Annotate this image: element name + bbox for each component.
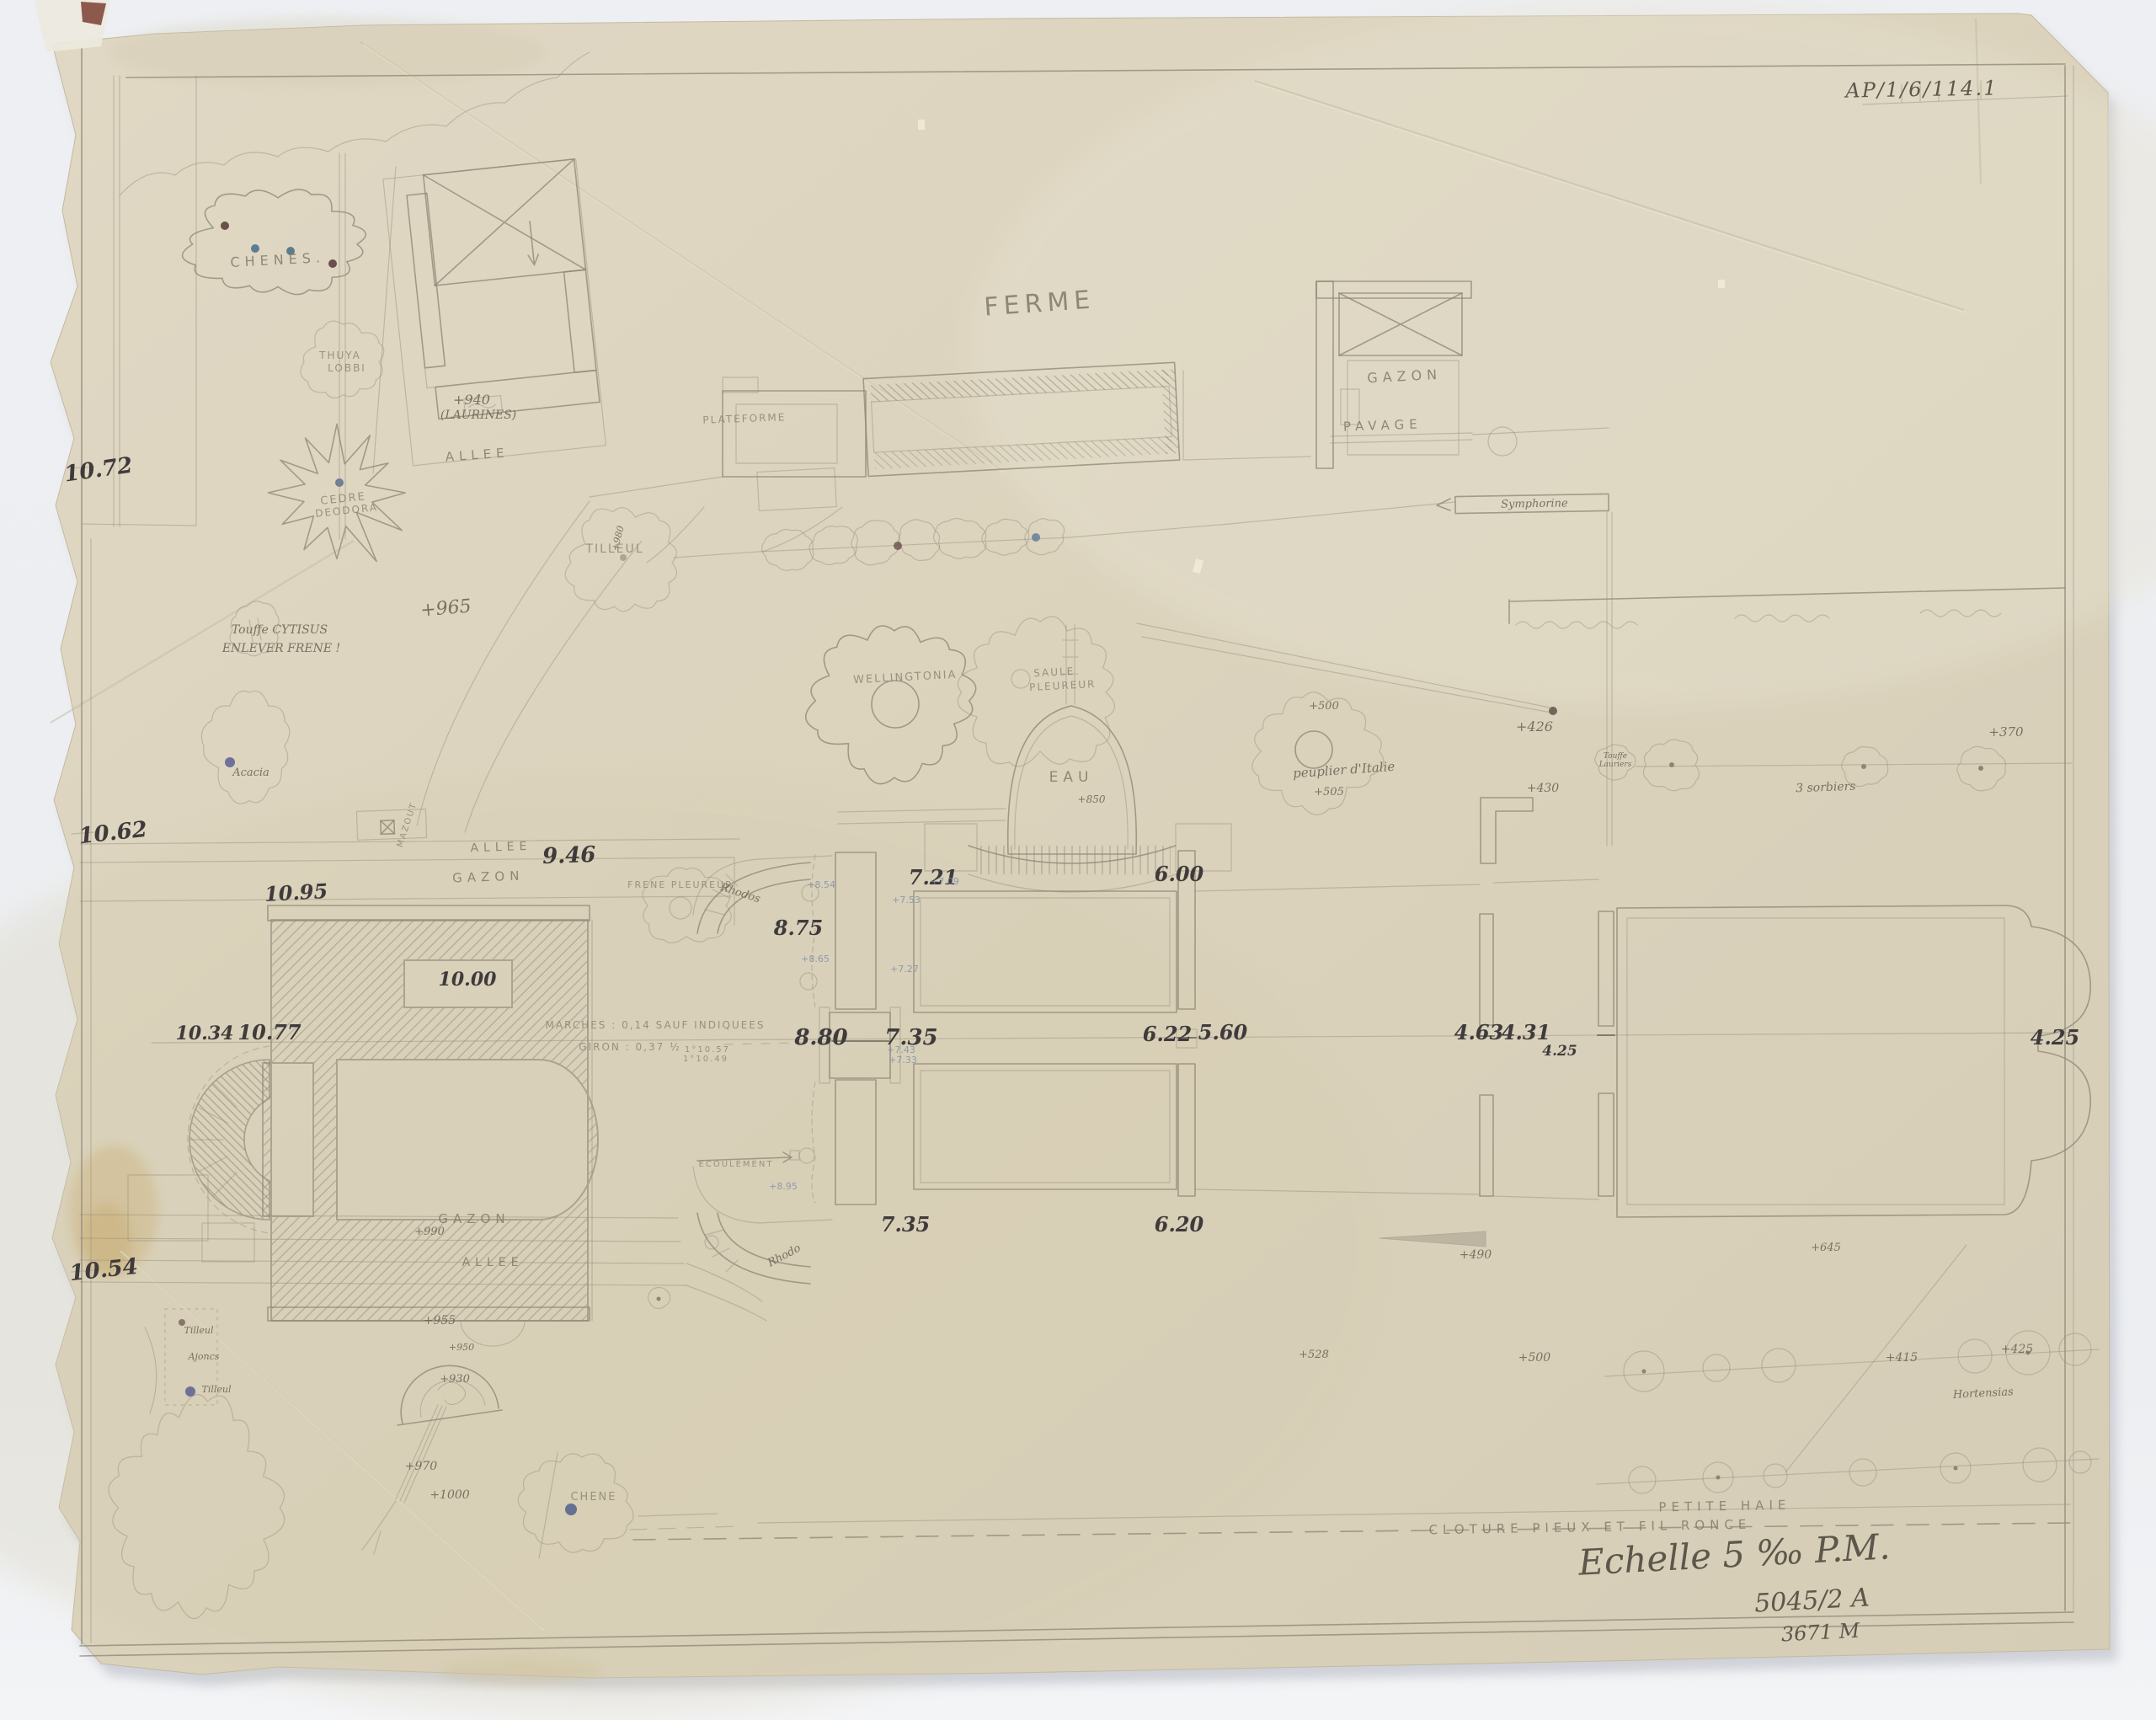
svg-text:7.35: 7.35: [881, 1212, 930, 1237]
svg-text:Ajoncs: Ajoncs: [188, 1351, 220, 1362]
svg-text:+940: +940: [453, 392, 490, 408]
svg-text:4.31: 4.31: [1502, 1020, 1550, 1044]
label-thuya: THUYA: [318, 350, 361, 361]
plan-canvas: AP/1/6/114.1 FERME PLATEFORME GAZON PAVA…: [0, 0, 2156, 1720]
svg-text:+645: +645: [1811, 1242, 1841, 1254]
svg-text:+370: +370: [1988, 724, 2024, 740]
label-touffe-lauriers: Touffe: [1604, 752, 1627, 761]
label-cytisus: Touffe CYTISUS: [232, 623, 328, 637]
svg-text:6.00: 6.00: [1155, 862, 1204, 886]
svg-text:+500: +500: [1309, 700, 1339, 713]
label-laurines: (LAURINES): [440, 409, 516, 422]
svg-text:+950: +950: [449, 1342, 474, 1353]
svg-text:+970: +970: [405, 1460, 438, 1473]
svg-text:8.75: 8.75: [773, 916, 823, 940]
svg-text:4.25: 4.25: [1542, 1043, 1577, 1060]
svg-text:+500: +500: [1518, 1351, 1551, 1365]
label-eau: EAU: [1049, 769, 1094, 786]
svg-text:4.63: 4.63: [1454, 1020, 1503, 1044]
svg-text:SAULE: SAULE: [1033, 665, 1075, 680]
label-gazon-top: GAZON: [452, 868, 525, 886]
svg-text:1°10.49: 1°10.49: [683, 1055, 728, 1064]
label-symphorine: Symphorine: [1501, 497, 1568, 510]
svg-text:LOBBI: LOBBI: [328, 362, 366, 374]
label-allee-top: ALLEE: [470, 840, 531, 856]
svg-text:+850: +850: [1078, 793, 1106, 805]
svg-text:1°10.57: 1°10.57: [685, 1045, 730, 1055]
svg-text:+8.95: +8.95: [769, 1181, 798, 1192]
svg-text:10.34: 10.34: [176, 1023, 234, 1044]
label-gazon-bottom: GAZON: [438, 1211, 510, 1226]
svg-text:+930: +930: [440, 1373, 470, 1386]
label-acacia: Acacia: [232, 767, 269, 779]
level-965: +965: [419, 596, 472, 621]
svg-text:+8.65: +8.65: [801, 953, 830, 964]
level-880: 8.80: [793, 1025, 847, 1050]
svg-text:Tilleul: Tilleul: [184, 1325, 213, 1336]
svg-text:+7.27: +7.27: [890, 964, 919, 975]
svg-text:+415: +415: [1886, 1351, 1919, 1365]
svg-text:Tilleul: Tilleul: [201, 1384, 231, 1395]
svg-text:+990: +990: [414, 1226, 445, 1238]
svg-text:6.22: 6.22: [1143, 1022, 1192, 1046]
level-946: 9.46: [542, 842, 596, 869]
svg-text:10.77: 10.77: [237, 1020, 301, 1044]
svg-text:+7.09: +7.09: [931, 876, 959, 887]
svg-text:4.25: 4.25: [2031, 1025, 2079, 1050]
svg-text:Lauriers: Lauriers: [1598, 761, 1632, 769]
svg-text:+1000: +1000: [430, 1488, 469, 1502]
label-chene: CHENE: [570, 1491, 616, 1504]
label-pavage: PAVAGE: [1343, 416, 1422, 434]
svg-text:+426: +426: [1516, 718, 1553, 734]
svg-text:+7.53: +7.53: [892, 895, 921, 905]
svg-text:+430: +430: [1527, 782, 1560, 795]
label-frene-pleureur: FRENE PLEUREUR: [627, 879, 734, 890]
label-enlever-frene: ENLEVER FRENE !: [221, 642, 340, 655]
label-petite-haie: PETITE HAIE: [1658, 1498, 1790, 1515]
svg-text:+490: +490: [1460, 1248, 1492, 1262]
level-1095: 10.95: [264, 879, 328, 906]
svg-text:5.60: 5.60: [1198, 1020, 1248, 1044]
svg-text:6.20: 6.20: [1155, 1212, 1204, 1237]
note-marches: MARCHES : 0,14 SAUF INDIQUEES: [546, 1019, 766, 1031]
svg-text:10.00: 10.00: [439, 969, 498, 991]
archive-mark: AP/1/6/114.1: [1844, 76, 1998, 102]
svg-text:+425: +425: [2001, 1343, 2034, 1356]
svg-text:+505: +505: [1314, 786, 1344, 799]
label-sorbiers: 3 sorbiers: [1796, 780, 1856, 795]
scanned-plan-page: AP/1/6/114.1 FERME PLATEFORME GAZON PAVA…: [0, 0, 2156, 1720]
note-giron: GIRON : 0,37 ½: [579, 1041, 680, 1053]
svg-text:+955: +955: [424, 1314, 456, 1327]
svg-text:+7.33: +7.33: [889, 1055, 917, 1066]
svg-text:+528: +528: [1299, 1349, 1329, 1361]
label-ecoulement: ECOULEMENT: [699, 1160, 774, 1169]
reference-number: 3671 M: [1780, 1619, 1861, 1647]
label-allee-bottom: ALLEE: [462, 1256, 524, 1269]
plan-number: 5045/2 A: [1753, 1583, 1870, 1618]
svg-text:+8.54: +8.54: [807, 879, 835, 890]
